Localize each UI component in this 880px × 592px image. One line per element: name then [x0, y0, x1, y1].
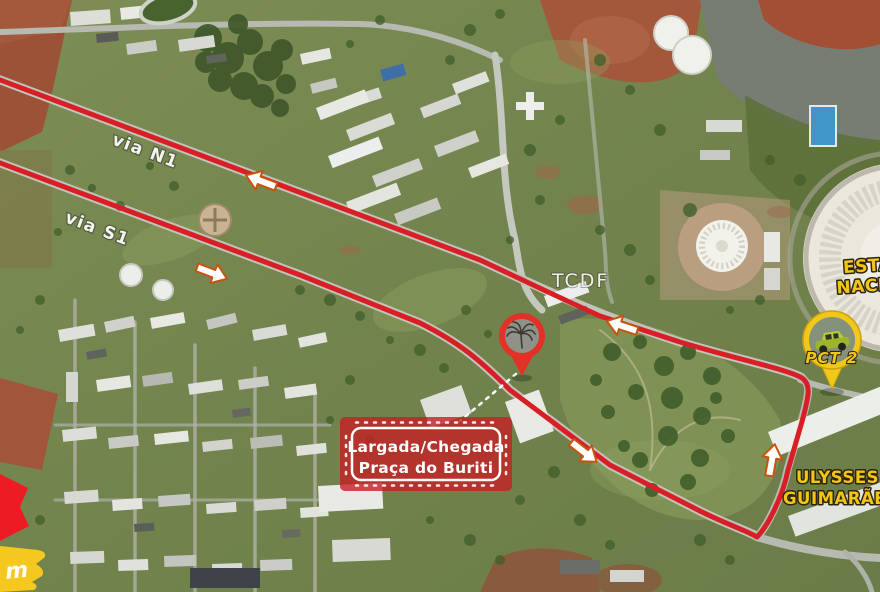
helipad-icon — [199, 204, 231, 236]
start-finish-callout: Largada/Chegada Praça do Buriti — [340, 417, 512, 491]
race-map: Largada/Chegada Praça do Buriti PCT 2 vi… — [0, 0, 880, 592]
poi-label-tcdf: TCDF — [551, 270, 609, 292]
checkpoint-label: PCT 2 — [806, 349, 859, 367]
satellite-map-canvas: Largada/Chegada Praça do Buriti PCT 2 vi… — [0, 0, 880, 592]
convention-center-label-line2: GUIMARÃES — [783, 489, 880, 508]
start-finish-label-line1: Largada/Chegada — [347, 438, 504, 456]
distance-label: m — [4, 558, 29, 585]
start-finish-label-line2: Praça do Buriti — [359, 459, 494, 477]
convention-center-label-line1: ULYSSES — [796, 468, 879, 487]
swimming-pool-icon — [810, 106, 836, 146]
gymnasium-dome-icon — [696, 220, 748, 272]
